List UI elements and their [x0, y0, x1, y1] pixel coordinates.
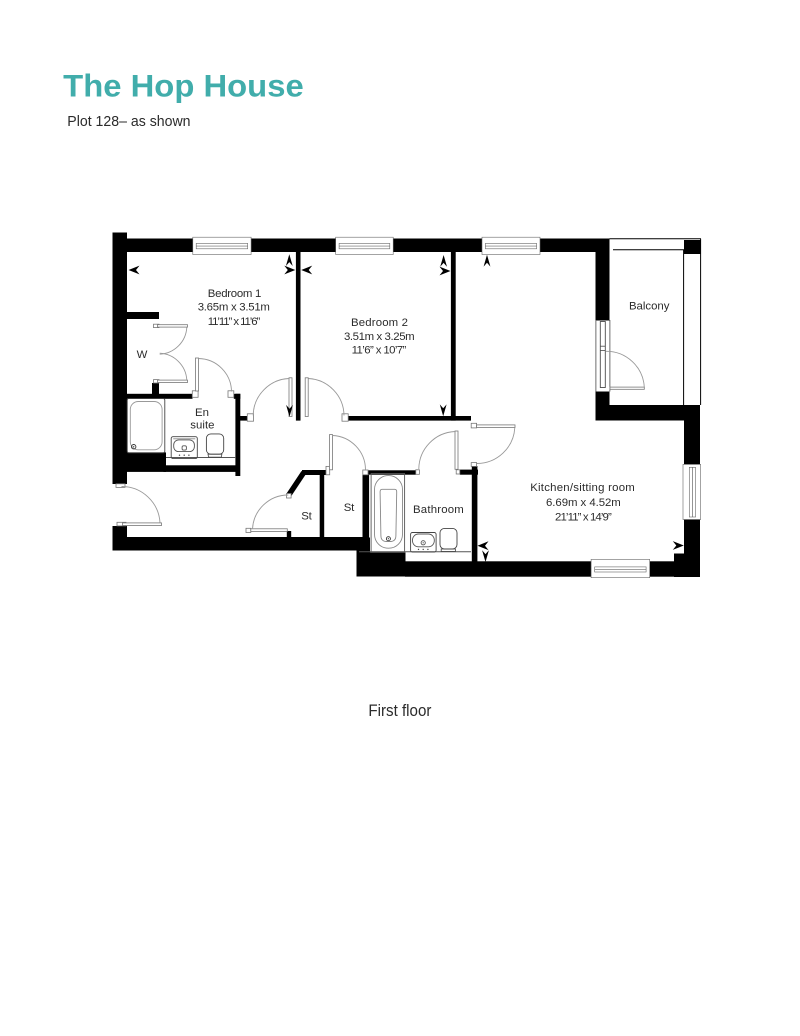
svg-text:11’11” x 11’6”: 11’11” x 11’6” [208, 316, 261, 328]
svg-text:Balcony: Balcony [629, 300, 670, 312]
svg-text:W: W [137, 349, 148, 361]
svg-text:Kitchen/sitting room: Kitchen/sitting room [530, 482, 635, 494]
svg-text:3.65m x 3.51m: 3.65m x 3.51m [198, 302, 270, 314]
svg-text:Plot 128– as shown: Plot 128– as shown [67, 113, 190, 130]
svg-text:11’6” x 10’7”: 11’6” x 10’7” [352, 344, 407, 356]
svg-text:Bedroom 2: Bedroom 2 [351, 317, 408, 329]
svg-text:En: En [195, 407, 209, 419]
svg-text:6.69m x 4.52m: 6.69m x 4.52m [546, 497, 621, 509]
svg-text:First floor: First floor [368, 702, 431, 720]
svg-text:St: St [301, 510, 312, 522]
svg-text:Bathroom: Bathroom [413, 504, 464, 516]
svg-text:3.51m x 3.25m: 3.51m x 3.25m [344, 331, 415, 343]
svg-text:21’11” x 14’9”: 21’11” x 14’9” [555, 511, 612, 523]
svg-text:The Hop House: The Hop House [63, 69, 304, 104]
svg-text:St: St [344, 502, 355, 514]
svg-text:Bedroom 1: Bedroom 1 [208, 288, 262, 300]
svg-text:suite: suite [190, 420, 214, 432]
